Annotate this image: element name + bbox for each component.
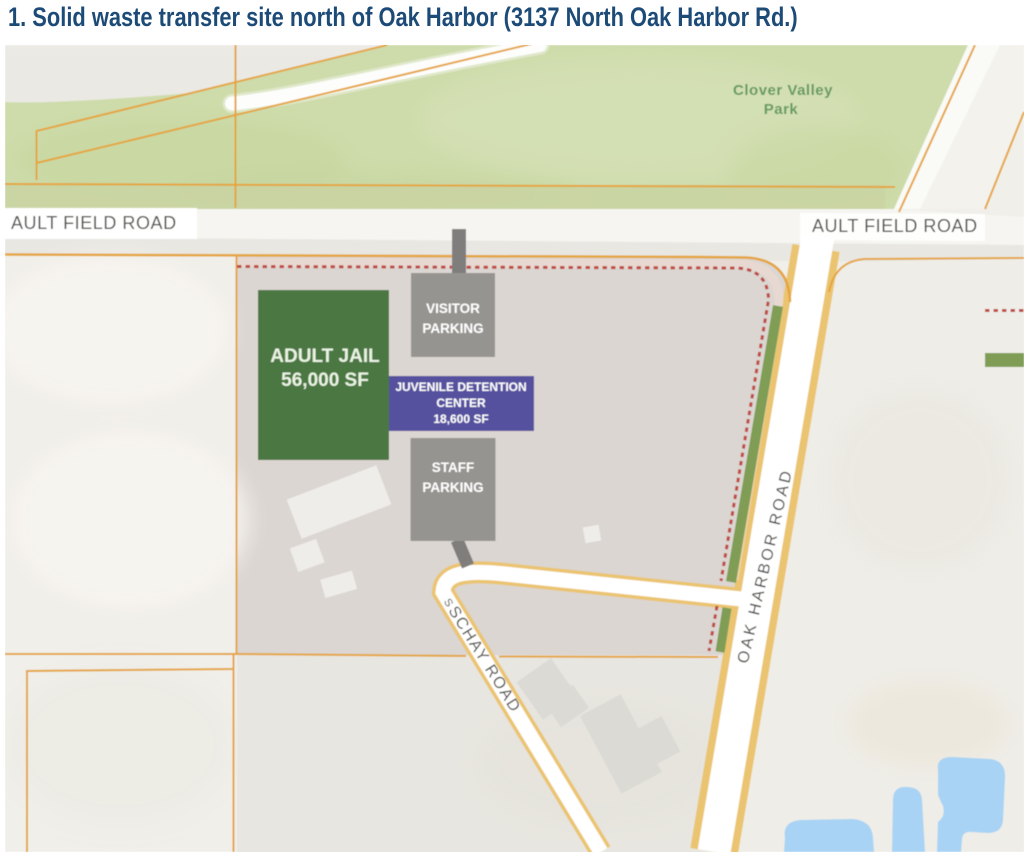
svg-text:VISITOR: VISITOR	[426, 301, 480, 316]
svg-text:56,000 SF: 56,000 SF	[281, 370, 369, 391]
svg-text:Clover Valley: Clover Valley	[733, 82, 833, 99]
svg-text:AULT FIELD ROAD: AULT FIELD ROAD	[812, 216, 978, 236]
svg-text:PARKING: PARKING	[422, 321, 483, 336]
svg-text:18,600 SF: 18,600 SF	[433, 412, 488, 426]
svg-text:PARKING: PARKING	[422, 480, 483, 495]
svg-text:CENTER: CENTER	[436, 396, 486, 410]
svg-text:ADULT JAIL: ADULT JAIL	[270, 346, 380, 367]
svg-text:JUVENILE DETENTION: JUVENILE DETENTION	[395, 380, 526, 394]
svg-text:Park: Park	[764, 101, 799, 118]
svg-text:STAFF: STAFF	[432, 460, 475, 475]
svg-text:AULT FIELD ROAD: AULT FIELD ROAD	[11, 213, 177, 233]
